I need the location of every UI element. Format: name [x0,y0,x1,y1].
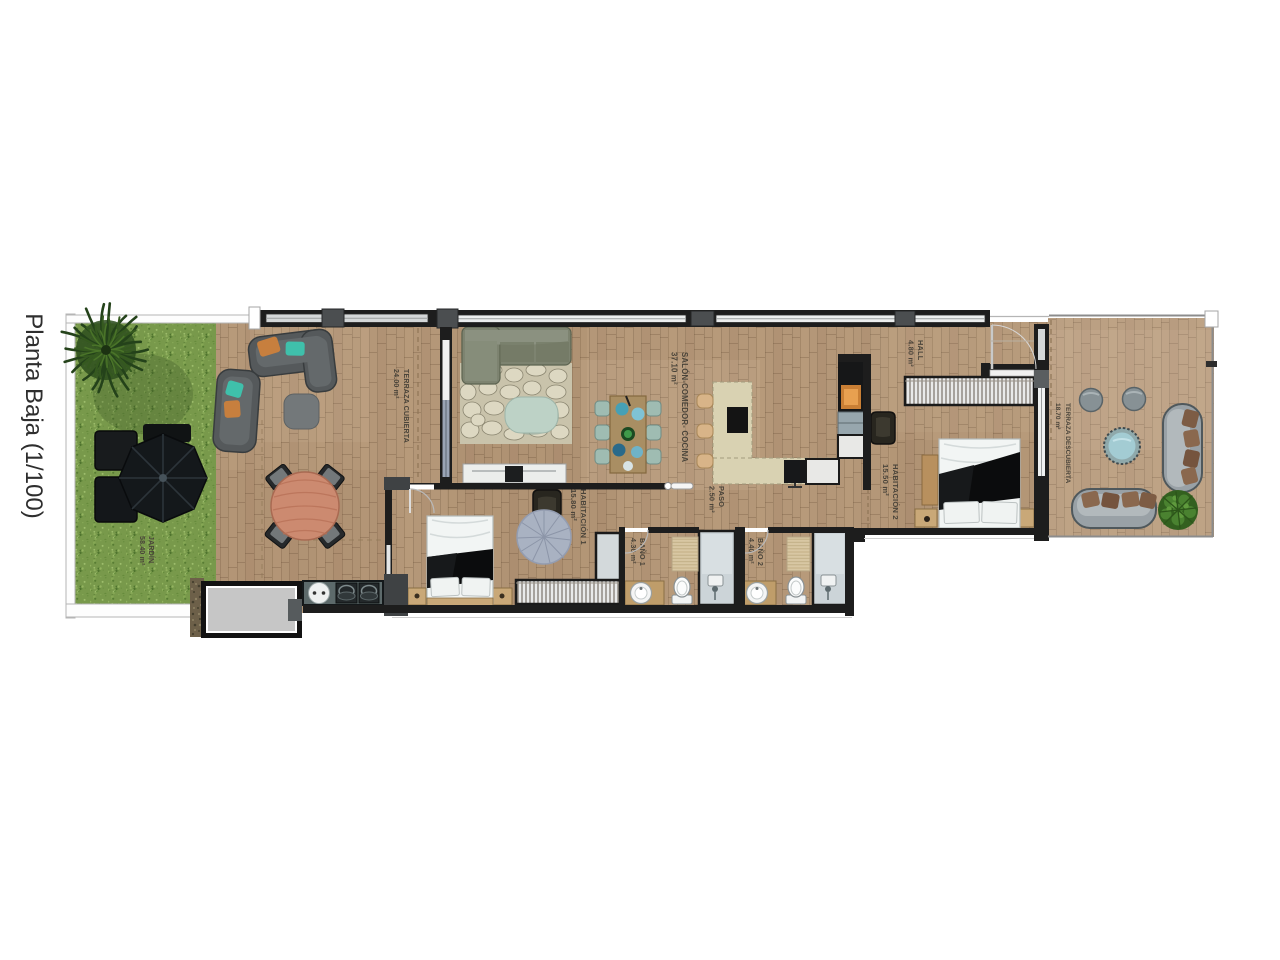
svg-text:18.70 m²: 18.70 m² [1054,403,1061,430]
svg-text:58.40 m²: 58.40 m² [138,536,145,566]
svg-text:JARDÍN: JARDÍN [147,536,156,563]
svg-text:PASO: PASO [717,486,726,507]
svg-text:Planta Baja (1/100): Planta Baja (1/100) [20,313,47,518]
svg-text:SALÓN-COMEDOR- COCINA: SALÓN-COMEDOR- COCINA [680,352,689,462]
svg-text:HALL: HALL [916,340,925,361]
svg-text:15.50 m²: 15.50 m² [881,464,890,496]
svg-text:4.80 m²: 4.80 m² [907,340,916,367]
svg-text:24.00 m²: 24.00 m² [392,369,399,399]
svg-text:TERRAZA DESCUBIERTA: TERRAZA DESCUBIERTA [1064,403,1071,483]
svg-text:HABITACIÓN 1: HABITACIÓN 1 [579,489,588,545]
svg-text:15.80 m²: 15.80 m² [569,489,578,521]
svg-text:BAÑO 1: BAÑO 1 [638,538,647,566]
svg-text:2.50 m²: 2.50 m² [708,486,717,513]
svg-text:37.10 m²: 37.10 m² [670,352,679,385]
svg-text:TERRAZA CUBIERTA: TERRAZA CUBIERTA [402,369,409,443]
svg-text:BAÑO 2: BAÑO 2 [756,538,765,566]
svg-text:HABITACIÓN 2: HABITACIÓN 2 [891,464,900,520]
